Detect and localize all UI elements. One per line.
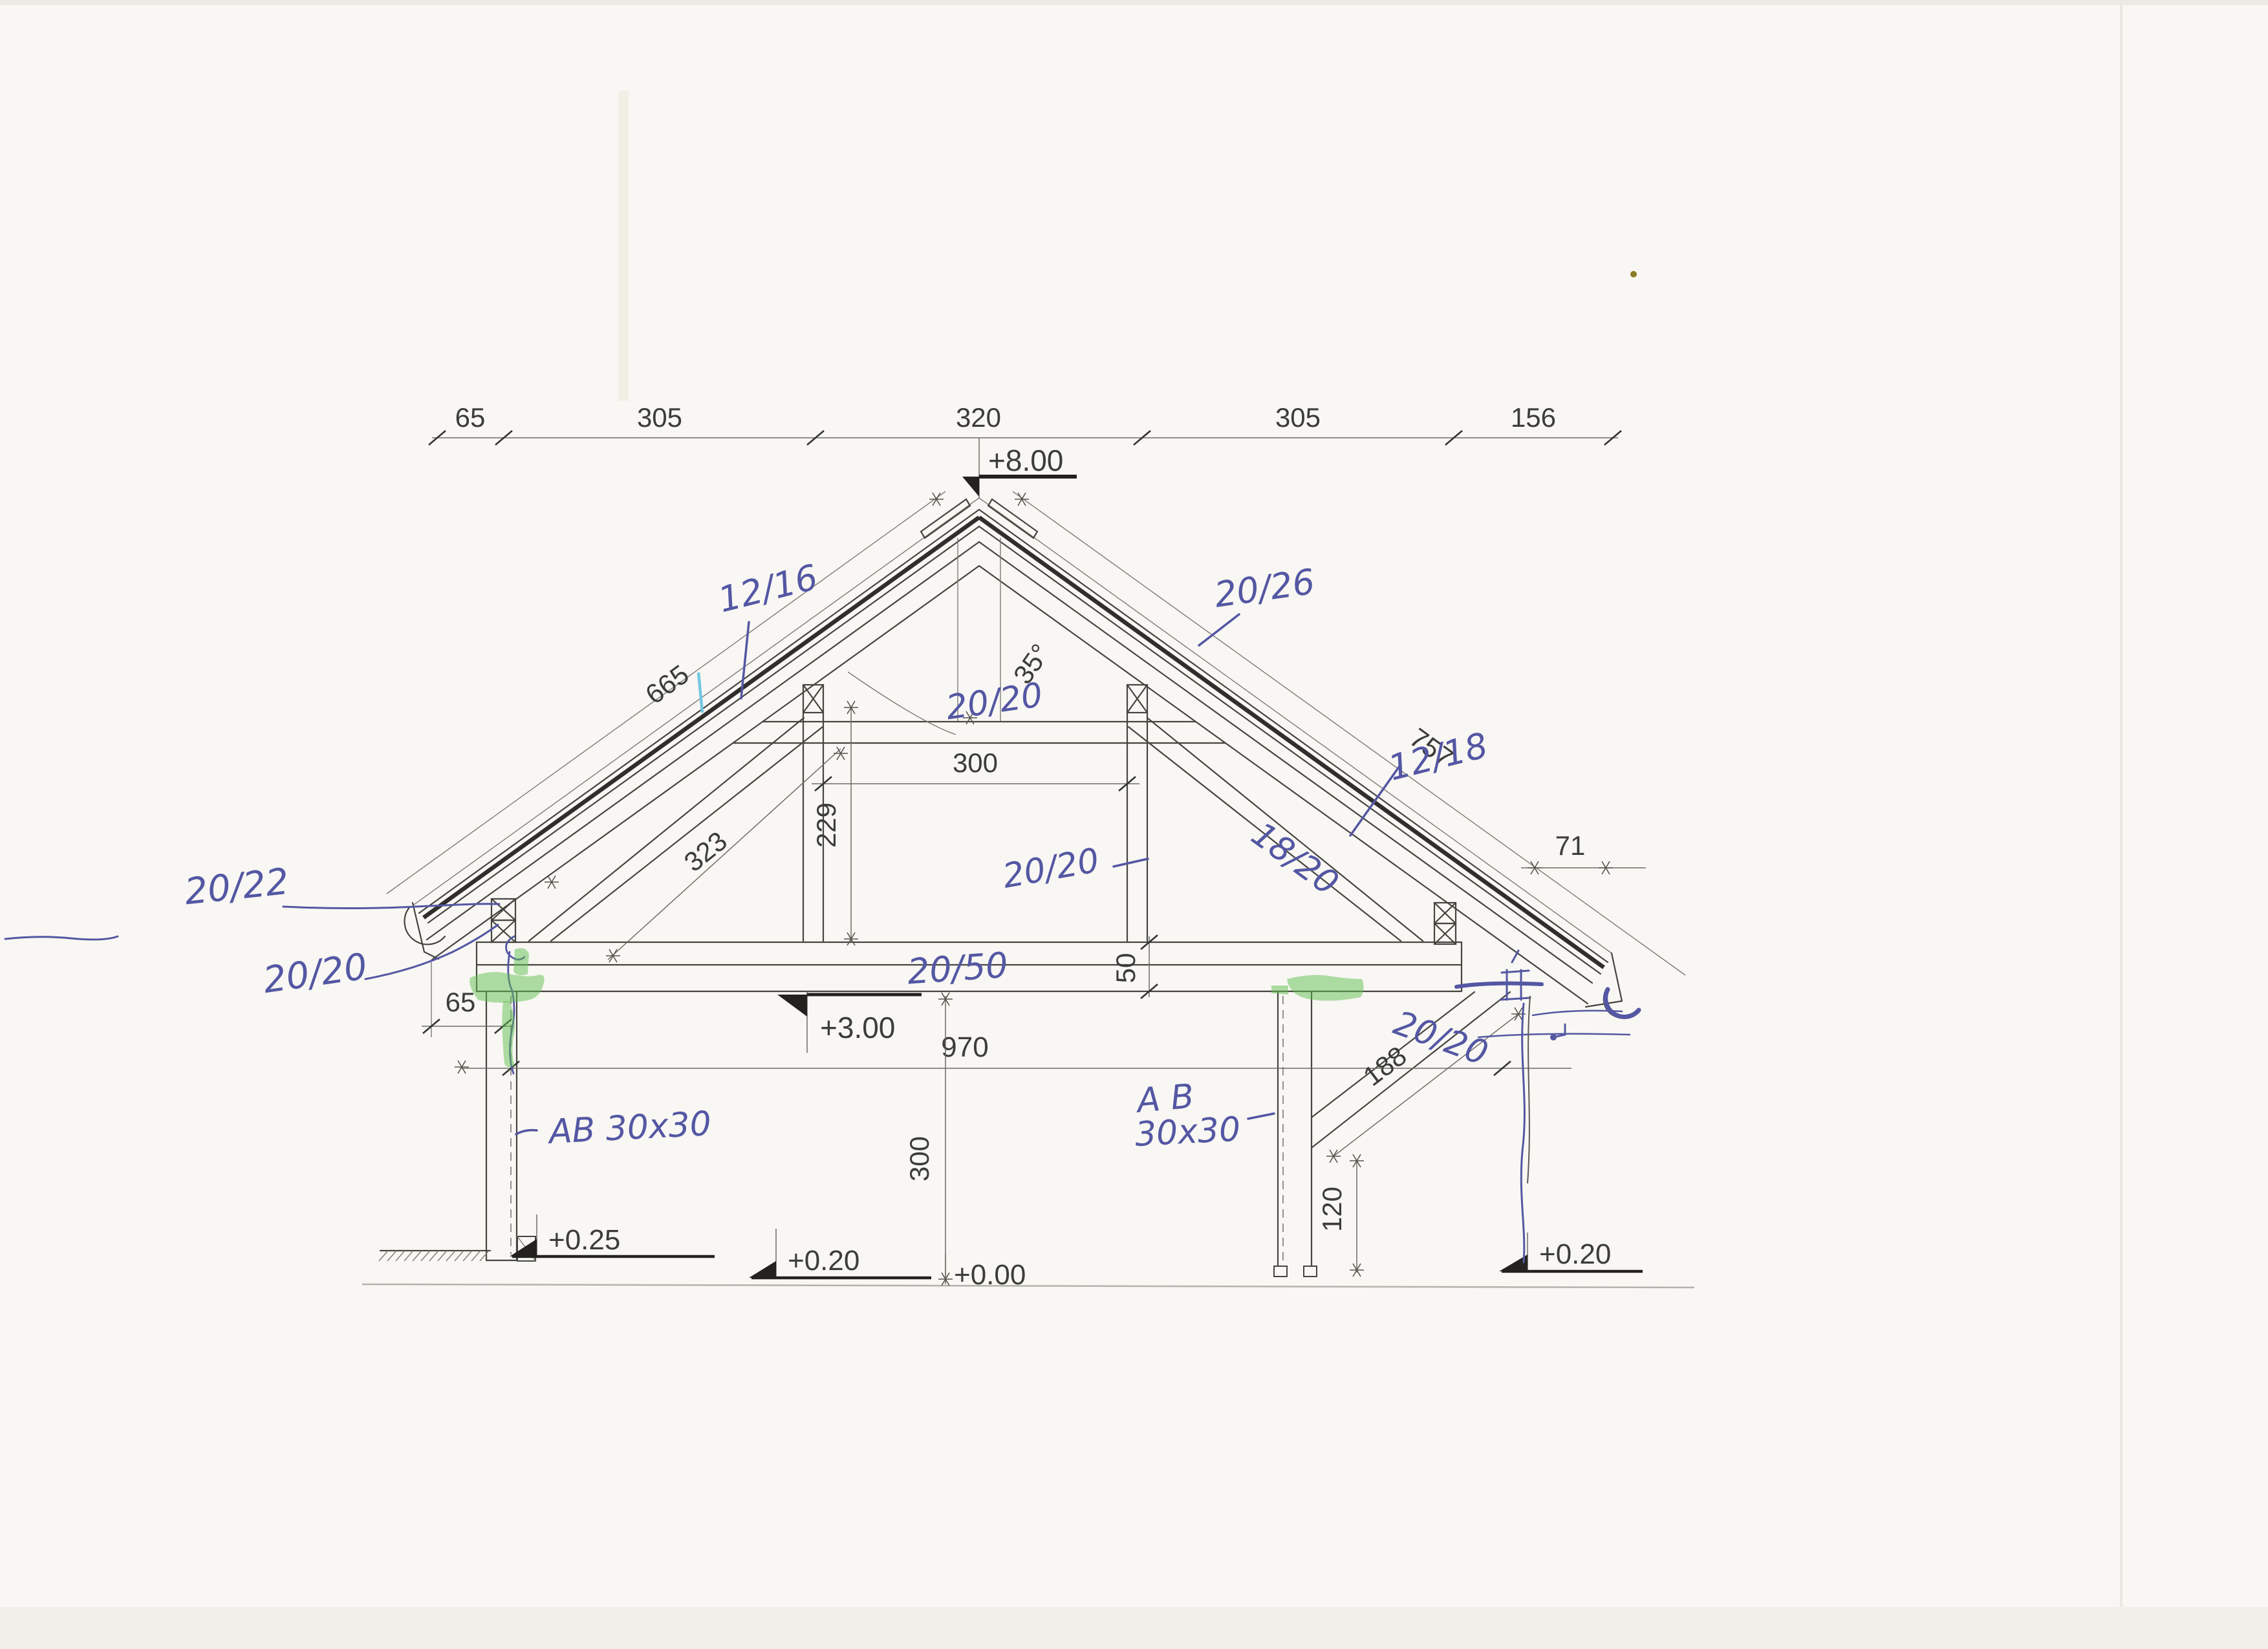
paper-speck <box>1630 271 1637 277</box>
ground-hatch-left <box>379 1251 490 1261</box>
level-zero: +0.00 <box>945 1255 1026 1291</box>
hand-brace-right: 18/20 <box>1244 815 1346 903</box>
hand-plate-left: 20/20 <box>261 945 370 1002</box>
hand-collar: 20/20 <box>944 676 1045 727</box>
dim-top-156: 156 <box>1511 402 1556 433</box>
level-ridge-label: +8.00 <box>988 444 1063 477</box>
dim-column-height: 300 <box>904 1136 934 1181</box>
wall-plate-right <box>1434 903 1456 944</box>
dim-collar-rise: 229 <box>811 803 841 848</box>
scanned-roof-truss-drawing: 65 305 320 305 156 +8.00 665 757 35° 300… <box>0 0 2268 1649</box>
hand-rafter-left: 12/16 <box>714 557 821 621</box>
paper-artifacts <box>0 0 2268 1649</box>
level-left-base: +0.25 <box>510 1214 715 1256</box>
dim-beam-depth: 50 <box>1110 953 1141 984</box>
brace-left <box>529 718 823 941</box>
dim-top-305b: 305 <box>1275 402 1321 433</box>
dim-knee-rise: 120 <box>1317 1187 1347 1232</box>
ridge-batten-left <box>921 499 970 538</box>
hand-purlin-right: 20/26 <box>1212 561 1317 616</box>
handwritten-annotations: 12/16 20/26 12/18 20/20 20/22 20/20 20/5… <box>5 557 1639 1262</box>
hand-beam: 20/50 <box>906 945 1010 993</box>
dim-overhang-left: 65 <box>446 987 476 1017</box>
hand-anchor-right-2: 30x30 <box>1134 1110 1242 1154</box>
level-beam: +3.00 <box>777 991 922 1053</box>
dim-span: 970 <box>941 1031 988 1063</box>
dim-top-320: 320 <box>956 402 1001 433</box>
dim-top-65: 65 <box>455 402 486 433</box>
column-right <box>1274 991 1317 1277</box>
dimensions: 65 305 320 305 156 +8.00 665 757 35° 300… <box>387 402 1685 1291</box>
level-center-base: +0.20 <box>749 1229 931 1278</box>
level-left-base-label: +0.25 <box>548 1224 620 1256</box>
dim-rafter-left: 665 <box>640 659 694 710</box>
dim-collar-span: 300 <box>953 748 998 778</box>
dim-overhang-right: 71 <box>1555 830 1586 861</box>
right-eaves-gutter <box>1586 953 1639 1018</box>
hand-purlin-left: 20/22 <box>182 861 290 914</box>
wall-plate-left <box>491 899 515 942</box>
collar-post-right <box>1127 685 1147 942</box>
dim-top-305a: 305 <box>637 402 682 433</box>
hand-post: 20/20 <box>1000 841 1102 896</box>
dim-knee-length: 188 <box>1357 1040 1412 1092</box>
dim-brace-left: 323 <box>678 825 733 878</box>
level-right-base: +0.20 <box>1499 1233 1643 1271</box>
level-beam-label: +3.00 <box>820 1011 895 1044</box>
hand-anchor-left: AB 30x30 <box>546 1105 713 1152</box>
ridge-batten-right <box>988 499 1037 538</box>
level-zero-label: +0.00 <box>954 1259 1026 1291</box>
level-center-base-label: +0.20 <box>788 1245 859 1277</box>
level-right-base-label: +0.20 <box>1539 1238 1611 1270</box>
level-ridge: +8.00 <box>962 438 1077 498</box>
